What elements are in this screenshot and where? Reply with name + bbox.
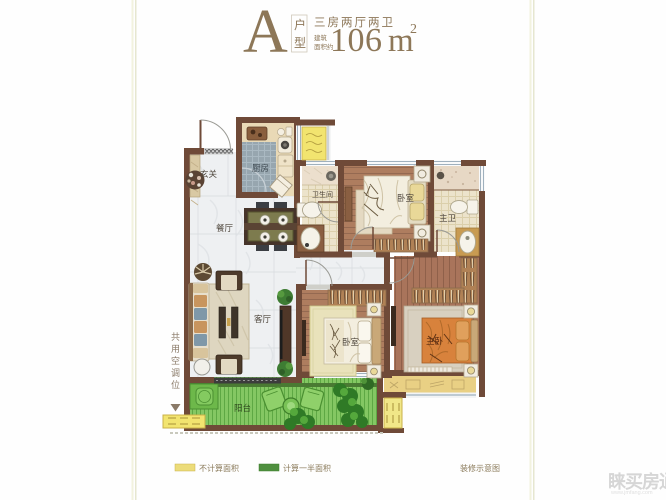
svg-text:空: 空	[171, 355, 180, 366]
svg-text:型: 型	[294, 36, 306, 50]
svg-text:餐厅: 餐厅	[216, 223, 234, 233]
svg-text:计算一半面积: 计算一半面积	[283, 463, 331, 473]
svg-text:阳台: 阳台	[234, 403, 251, 413]
svg-text:主卫: 主卫	[439, 213, 457, 223]
svg-text:卧室: 卧室	[397, 193, 415, 203]
svg-text:户: 户	[294, 17, 306, 32]
svg-text:卧室: 卧室	[342, 337, 360, 347]
svg-text:共: 共	[171, 332, 180, 342]
svg-text:位: 位	[171, 379, 180, 390]
svg-text:106: 106	[330, 22, 383, 59]
svg-text:A: A	[243, 0, 288, 66]
svg-text:玄关: 玄关	[200, 169, 218, 179]
svg-text:调: 调	[171, 368, 180, 378]
svg-text:客厅: 客厅	[254, 314, 272, 324]
svg-text:装修示意图: 装修示意图	[460, 463, 500, 473]
svg-text:厨房: 厨房	[252, 163, 269, 173]
svg-text:主卧: 主卧	[426, 336, 444, 346]
svg-text:用: 用	[171, 344, 180, 354]
svg-text:建筑: 建筑	[314, 33, 328, 42]
svg-text:2: 2	[410, 22, 417, 37]
svg-text:卫生间: 卫生间	[312, 190, 333, 199]
svg-text:睐买房通: 睐买房通	[608, 471, 666, 492]
svg-text:不计算面积: 不计算面积	[199, 463, 239, 473]
svg-text:www.jmfang.com: www.jmfang.com	[610, 490, 653, 496]
